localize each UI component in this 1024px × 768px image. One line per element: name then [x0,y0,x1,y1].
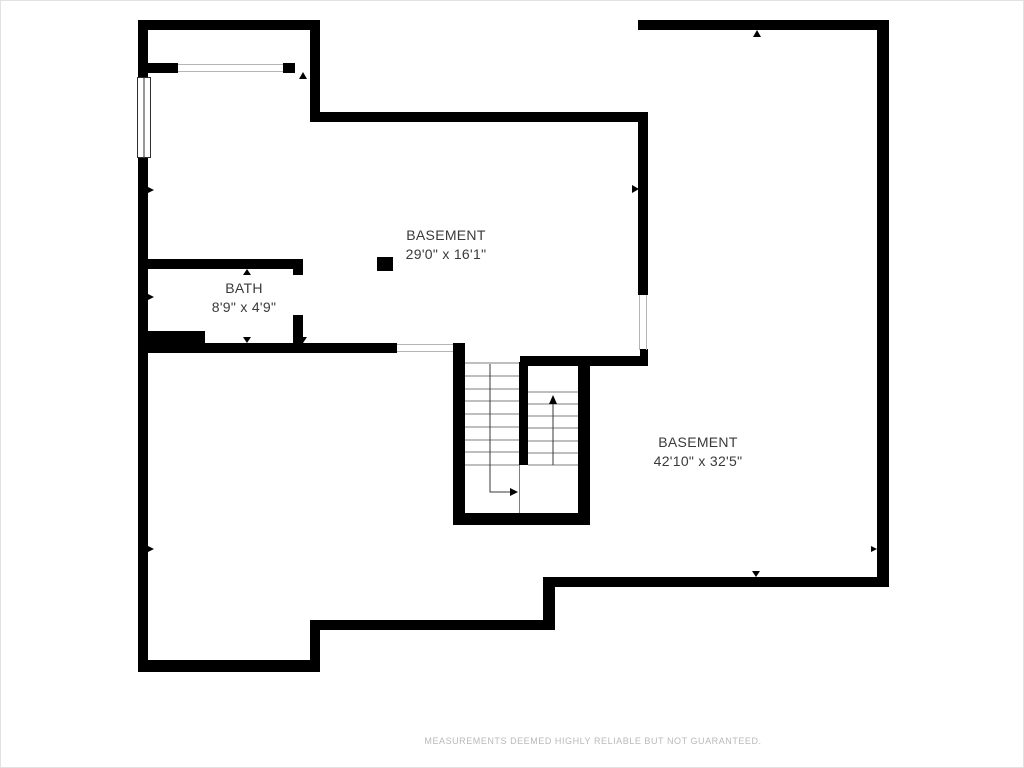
wall-divider-right-seg [283,63,295,73]
wall-stair-right [578,356,590,525]
wall-stair-bottom [453,513,590,525]
window-icon [138,78,151,158]
marker-right-icon [148,294,154,300]
marker-right-icon [148,187,154,193]
wall-notch-horizontal [310,112,648,122]
wall-stair-middle [519,362,528,465]
marker-right-icon [632,185,639,193]
wall-bath-thick-block [148,331,205,343]
wall-bath-right-upper [293,259,303,275]
marker-up-icon [753,30,761,37]
marker-down-icon [243,337,251,343]
stair-arrowhead-up [549,395,557,404]
room-dims: 42'10" x 32'5" [654,452,743,471]
wall-interior-vertical [638,112,648,295]
room-label-bath: BATH 8'9" x 4'9" [212,279,277,317]
room-name: BATH [212,279,277,298]
room-label-basement-right: BASEMENT 42'10" x 32'5" [654,433,743,471]
wall-bath-top [143,259,303,269]
room-dims: 8'9" x 4'9" [212,298,277,317]
wall-bath-bottom [138,343,397,353]
column-post [377,257,393,271]
wall-left-lower [138,157,148,672]
stair-run-line [490,364,510,492]
marker-up-icon [299,72,307,79]
wall-bottom-left [138,660,320,672]
wall-stair-top-cap [640,349,648,356]
wall-stair-left [453,343,465,525]
marker-up-icon [243,269,251,275]
walls [138,20,889,672]
wall-bottom-right [543,577,889,587]
wall-divider-left-seg [143,63,178,73]
floor-plan-drawing [0,0,1024,768]
measurements-disclaimer: MEASUREMENTS DEEMED HIGHLY RELIABLE BUT … [424,736,761,746]
floor-plan-page: BASEMENT 29'0" x 16'1" BATH 8'9" x 4'9" … [0,0,1024,768]
room-name: BASEMENT [406,226,487,245]
stair-arrowhead-right [510,488,518,496]
room-label-basement-middle: BASEMENT 29'0" x 16'1" [406,226,487,264]
marker-down-icon [752,571,760,577]
wall-top-left [143,20,320,30]
wall-bottom-middle [310,620,555,630]
wall-notch-vertical [310,20,320,122]
marker-right-icon [871,546,877,552]
wall-right [877,20,889,587]
marker-right-icon [148,546,154,552]
wall-top-right [638,20,889,30]
room-name: BASEMENT [654,433,743,452]
room-dims: 29'0" x 16'1" [406,245,487,264]
